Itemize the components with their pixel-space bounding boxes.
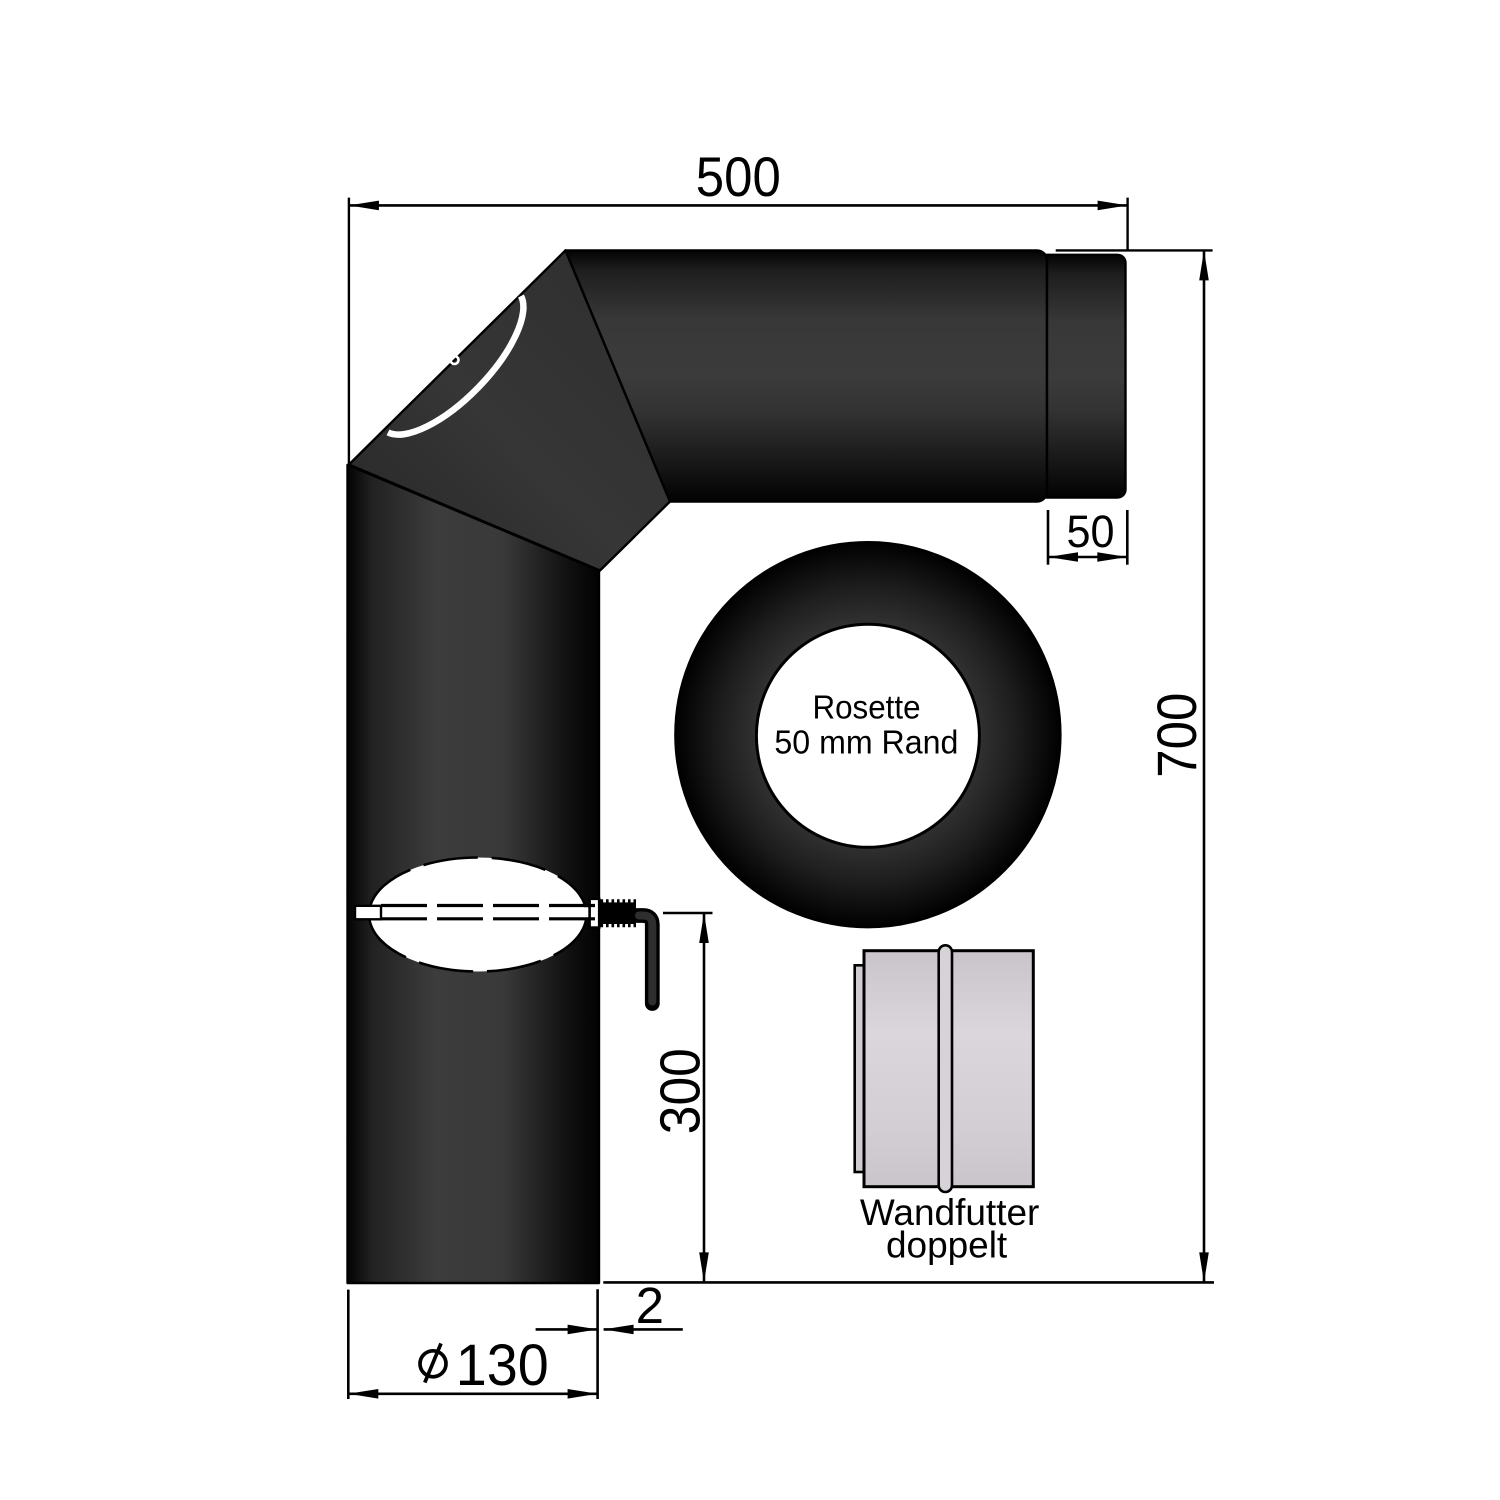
svg-text:700: 700 (1145, 693, 1208, 778)
svg-text:2: 2 (636, 1277, 664, 1334)
svg-text:500: 500 (696, 145, 781, 208)
svg-text:50: 50 (1067, 506, 1115, 557)
svg-text:300: 300 (649, 1048, 713, 1134)
svg-text:doppelt: doppelt (886, 1225, 1008, 1266)
svg-text:Rosette: Rosette (813, 689, 921, 726)
svg-text:130: 130 (456, 1333, 549, 1398)
svg-text:50 mm Rand: 50 mm Rand (774, 724, 958, 761)
